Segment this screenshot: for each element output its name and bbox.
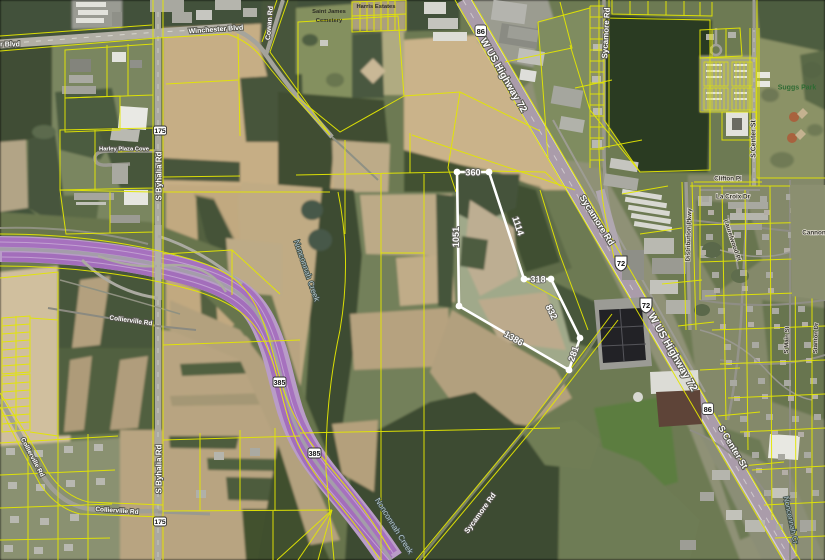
svg-text:S Main St: S Main St — [784, 326, 791, 353]
svg-text:ster Blvd: ster Blvd — [0, 42, 20, 49]
svg-text:Suggs Park: Suggs Park — [778, 85, 817, 92]
svg-text:175: 175 — [154, 128, 166, 135]
svg-text:86: 86 — [704, 405, 712, 414]
svg-text:318: 318 — [530, 275, 545, 285]
svg-text:S Byhalia Rd: S Byhalia Rd — [155, 444, 164, 493]
svg-text:Clifton Pl: Clifton Pl — [714, 176, 742, 183]
svg-text:S Byhalia Rd: S Byhalia Rd — [155, 151, 164, 200]
svg-text:S Center St: S Center St — [751, 119, 758, 157]
svg-text:Harris Estates: Harris Estates — [357, 4, 396, 10]
svg-text:Saint James: Saint James — [312, 9, 346, 15]
svg-text:385: 385 — [274, 380, 286, 387]
svg-text:175: 175 — [154, 519, 166, 526]
svg-text:72: 72 — [642, 301, 650, 310]
svg-text:Stanton Dr: Stanton Dr — [813, 322, 820, 354]
svg-text:Harley Plaza Cove: Harley Plaza Cove — [99, 147, 150, 153]
svg-text:385: 385 — [309, 451, 321, 458]
svg-text:86: 86 — [477, 27, 485, 36]
svg-text:72: 72 — [617, 259, 625, 268]
svg-text:La Croix Dr: La Croix Dr — [716, 194, 750, 201]
svg-text:Cannon: Cannon — [802, 230, 825, 237]
svg-text:1051: 1051 — [451, 227, 461, 247]
svg-text:360: 360 — [465, 168, 480, 178]
svg-text:Cemetery: Cemetery — [316, 18, 343, 24]
